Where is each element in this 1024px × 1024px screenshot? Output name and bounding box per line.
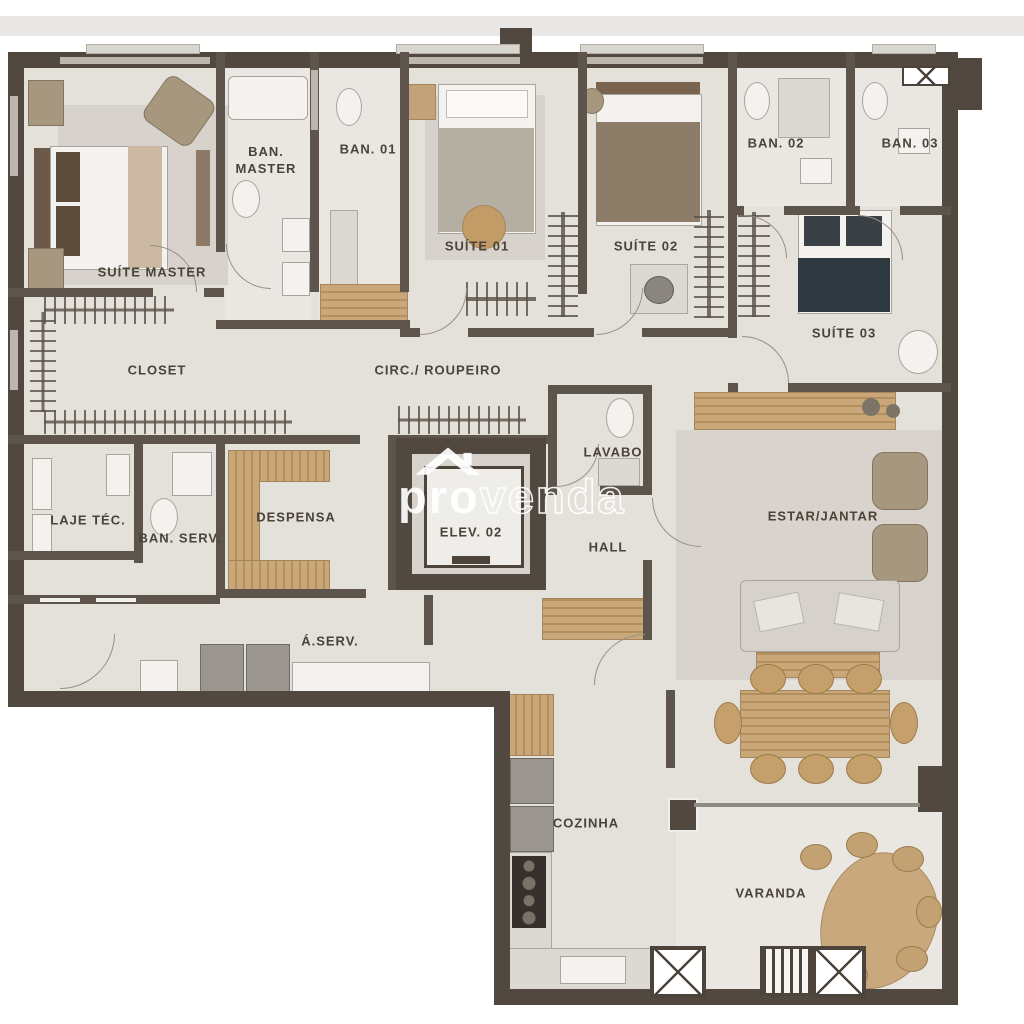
suite-02-headboard xyxy=(596,82,700,94)
window-glazing xyxy=(408,57,520,64)
wall-segment xyxy=(400,328,420,337)
room-label-lavabo: LAVABO xyxy=(584,445,643,460)
dining-chair xyxy=(750,664,786,694)
dining-chair xyxy=(798,664,834,694)
wall-segment xyxy=(666,690,675,768)
toilet xyxy=(744,82,770,120)
floor-plan: SUÍTE MASTER BAN. MASTER BAN. 01 SUÍTE 0… xyxy=(0,0,1024,1024)
varanda-chair xyxy=(916,896,942,928)
oven-tower xyxy=(510,806,554,852)
window-glazing xyxy=(60,57,210,64)
laje-panel xyxy=(32,514,52,556)
suite-01-pillows xyxy=(446,90,528,118)
wall-segment xyxy=(8,551,143,560)
wardrobe-hatch xyxy=(548,212,578,317)
dining-chair xyxy=(798,754,834,784)
wall-segment xyxy=(8,691,510,707)
dining-chair xyxy=(714,702,742,744)
room-label-ban-master: BAN. MASTER xyxy=(229,144,303,178)
wall-segment xyxy=(784,206,860,215)
wall-segment xyxy=(728,383,738,392)
shower-tray xyxy=(778,78,830,138)
wall-segment xyxy=(494,691,510,1005)
room-label-laje-tec: LAJE TÉC. xyxy=(50,513,125,528)
sink xyxy=(282,218,310,252)
pillar xyxy=(918,766,944,812)
varanda-chair xyxy=(800,844,832,870)
dryer xyxy=(246,644,290,694)
room-label-ban-03: BAN. 03 xyxy=(882,136,939,151)
wall-segment xyxy=(942,52,958,1005)
suite-03-pillow xyxy=(804,216,840,246)
room-label-a-serv: Á.SERV. xyxy=(301,634,359,649)
shower-tray xyxy=(172,452,212,496)
dining-table xyxy=(740,690,890,758)
wall-segment xyxy=(788,383,951,392)
wall-segment xyxy=(643,385,652,495)
window-slit xyxy=(40,598,80,602)
elevator-x-shaft xyxy=(812,946,866,998)
suite-master-bench xyxy=(196,150,210,246)
toilet xyxy=(606,398,634,438)
room-label-suite-03: SUÍTE 03 xyxy=(812,326,876,341)
room-label-despensa: DESPENSA xyxy=(256,510,336,525)
window xyxy=(396,44,520,54)
washer xyxy=(200,644,244,694)
wall-segment xyxy=(846,52,855,208)
elevator-door xyxy=(452,556,490,564)
room-label-circ-roupeiro: CIRC./ ROUPEIRO xyxy=(375,363,502,378)
suite-02-blanket xyxy=(596,122,700,222)
toilet xyxy=(232,180,260,218)
wall-segment xyxy=(216,589,366,598)
wall-segment xyxy=(8,288,153,297)
wall-segment xyxy=(494,989,958,1005)
cooktop xyxy=(512,856,546,928)
sink xyxy=(800,158,832,184)
dining-chair xyxy=(750,754,786,784)
room-label-varanda: VARANDA xyxy=(735,886,806,901)
suite-master-sideboard xyxy=(28,248,64,290)
window-glazing xyxy=(10,330,18,390)
pantry-shelf-bottom xyxy=(228,560,330,592)
elevator-car xyxy=(424,466,524,568)
wall-segment xyxy=(468,328,594,337)
wardrobe-cabinet xyxy=(320,284,408,324)
plant xyxy=(886,404,900,418)
roupeiro-hatch xyxy=(398,406,526,434)
dining-chair xyxy=(846,754,882,784)
varanda-chair xyxy=(846,832,878,858)
plant xyxy=(862,398,880,416)
laje-panel xyxy=(32,458,52,510)
varanda-chair xyxy=(892,846,924,872)
wall-segment xyxy=(216,320,410,329)
suite-02-desk-chair xyxy=(644,276,674,304)
room-label-ban-01: BAN. 01 xyxy=(340,142,397,157)
wall-segment xyxy=(900,206,951,215)
sink xyxy=(598,458,640,486)
wall-segment xyxy=(728,52,737,208)
wall-segment xyxy=(8,435,360,444)
room-label-suite-01: SUÍTE 01 xyxy=(445,239,509,254)
closet-rail-hatch xyxy=(30,312,56,412)
window-glazing xyxy=(585,57,703,64)
suite-03-blanket xyxy=(798,258,890,312)
bathtub xyxy=(228,76,308,120)
wall-segment xyxy=(578,52,587,294)
laje-panel xyxy=(106,454,130,496)
toilet xyxy=(862,82,888,120)
armchair xyxy=(872,452,928,510)
room-label-hall: HALL xyxy=(589,540,628,555)
varanda-chair xyxy=(896,946,928,972)
wall-segment xyxy=(424,595,433,645)
window xyxy=(86,44,200,54)
wardrobe-hatch xyxy=(694,210,724,318)
window-glazing xyxy=(10,96,18,176)
suite-master-nightstand xyxy=(28,80,64,126)
shaft-window xyxy=(311,70,318,130)
room-label-suite-master: SUÍTE MASTER xyxy=(98,265,207,280)
elevator-x-shaft xyxy=(650,946,706,998)
wall-segment xyxy=(728,206,737,338)
suite-01-nightstand xyxy=(406,84,436,120)
window xyxy=(580,44,704,54)
closet-rail-hatch xyxy=(44,296,174,324)
laundry-counter xyxy=(292,662,430,694)
wall-segment xyxy=(204,288,224,297)
sink xyxy=(282,262,310,296)
wall-segment xyxy=(643,560,652,640)
dining-chair xyxy=(890,702,918,744)
room-label-ban-serv: BAN. SERV. xyxy=(139,531,222,546)
room-label-elev-02: ELEV. 02 xyxy=(440,525,502,540)
suite-master-pillow xyxy=(56,152,80,202)
laundry-sink xyxy=(140,660,178,692)
hall-sideboard xyxy=(542,598,644,640)
kitchen-sink xyxy=(560,956,626,984)
fridge xyxy=(510,758,554,804)
duct-shaft xyxy=(760,946,812,996)
suite-03-chair xyxy=(898,330,938,374)
wall-segment xyxy=(400,52,409,292)
kitchen-cabinet xyxy=(508,694,554,756)
sliding-door-track xyxy=(694,803,920,807)
armchair xyxy=(872,524,928,582)
closet-rail-hatch xyxy=(44,410,292,434)
room-label-cozinha: COZINHA xyxy=(553,816,619,831)
wall-segment xyxy=(216,52,225,252)
window-x xyxy=(902,66,950,86)
pillar xyxy=(958,58,982,110)
room-label-suite-02: SUÍTE 02 xyxy=(614,239,678,254)
window-slit xyxy=(96,598,136,602)
dining-chair xyxy=(846,664,882,694)
wall-segment xyxy=(216,443,225,591)
toilet xyxy=(336,88,362,126)
window xyxy=(872,44,936,54)
wall-segment xyxy=(642,328,737,337)
wardrobe-hatch xyxy=(466,282,536,316)
room-label-ban-02: BAN. 02 xyxy=(748,136,805,151)
wall-segment xyxy=(548,385,652,394)
room-label-estar-jantar: ESTAR/JANTAR xyxy=(768,509,878,524)
room-label-closet: CLOSET xyxy=(128,363,187,378)
